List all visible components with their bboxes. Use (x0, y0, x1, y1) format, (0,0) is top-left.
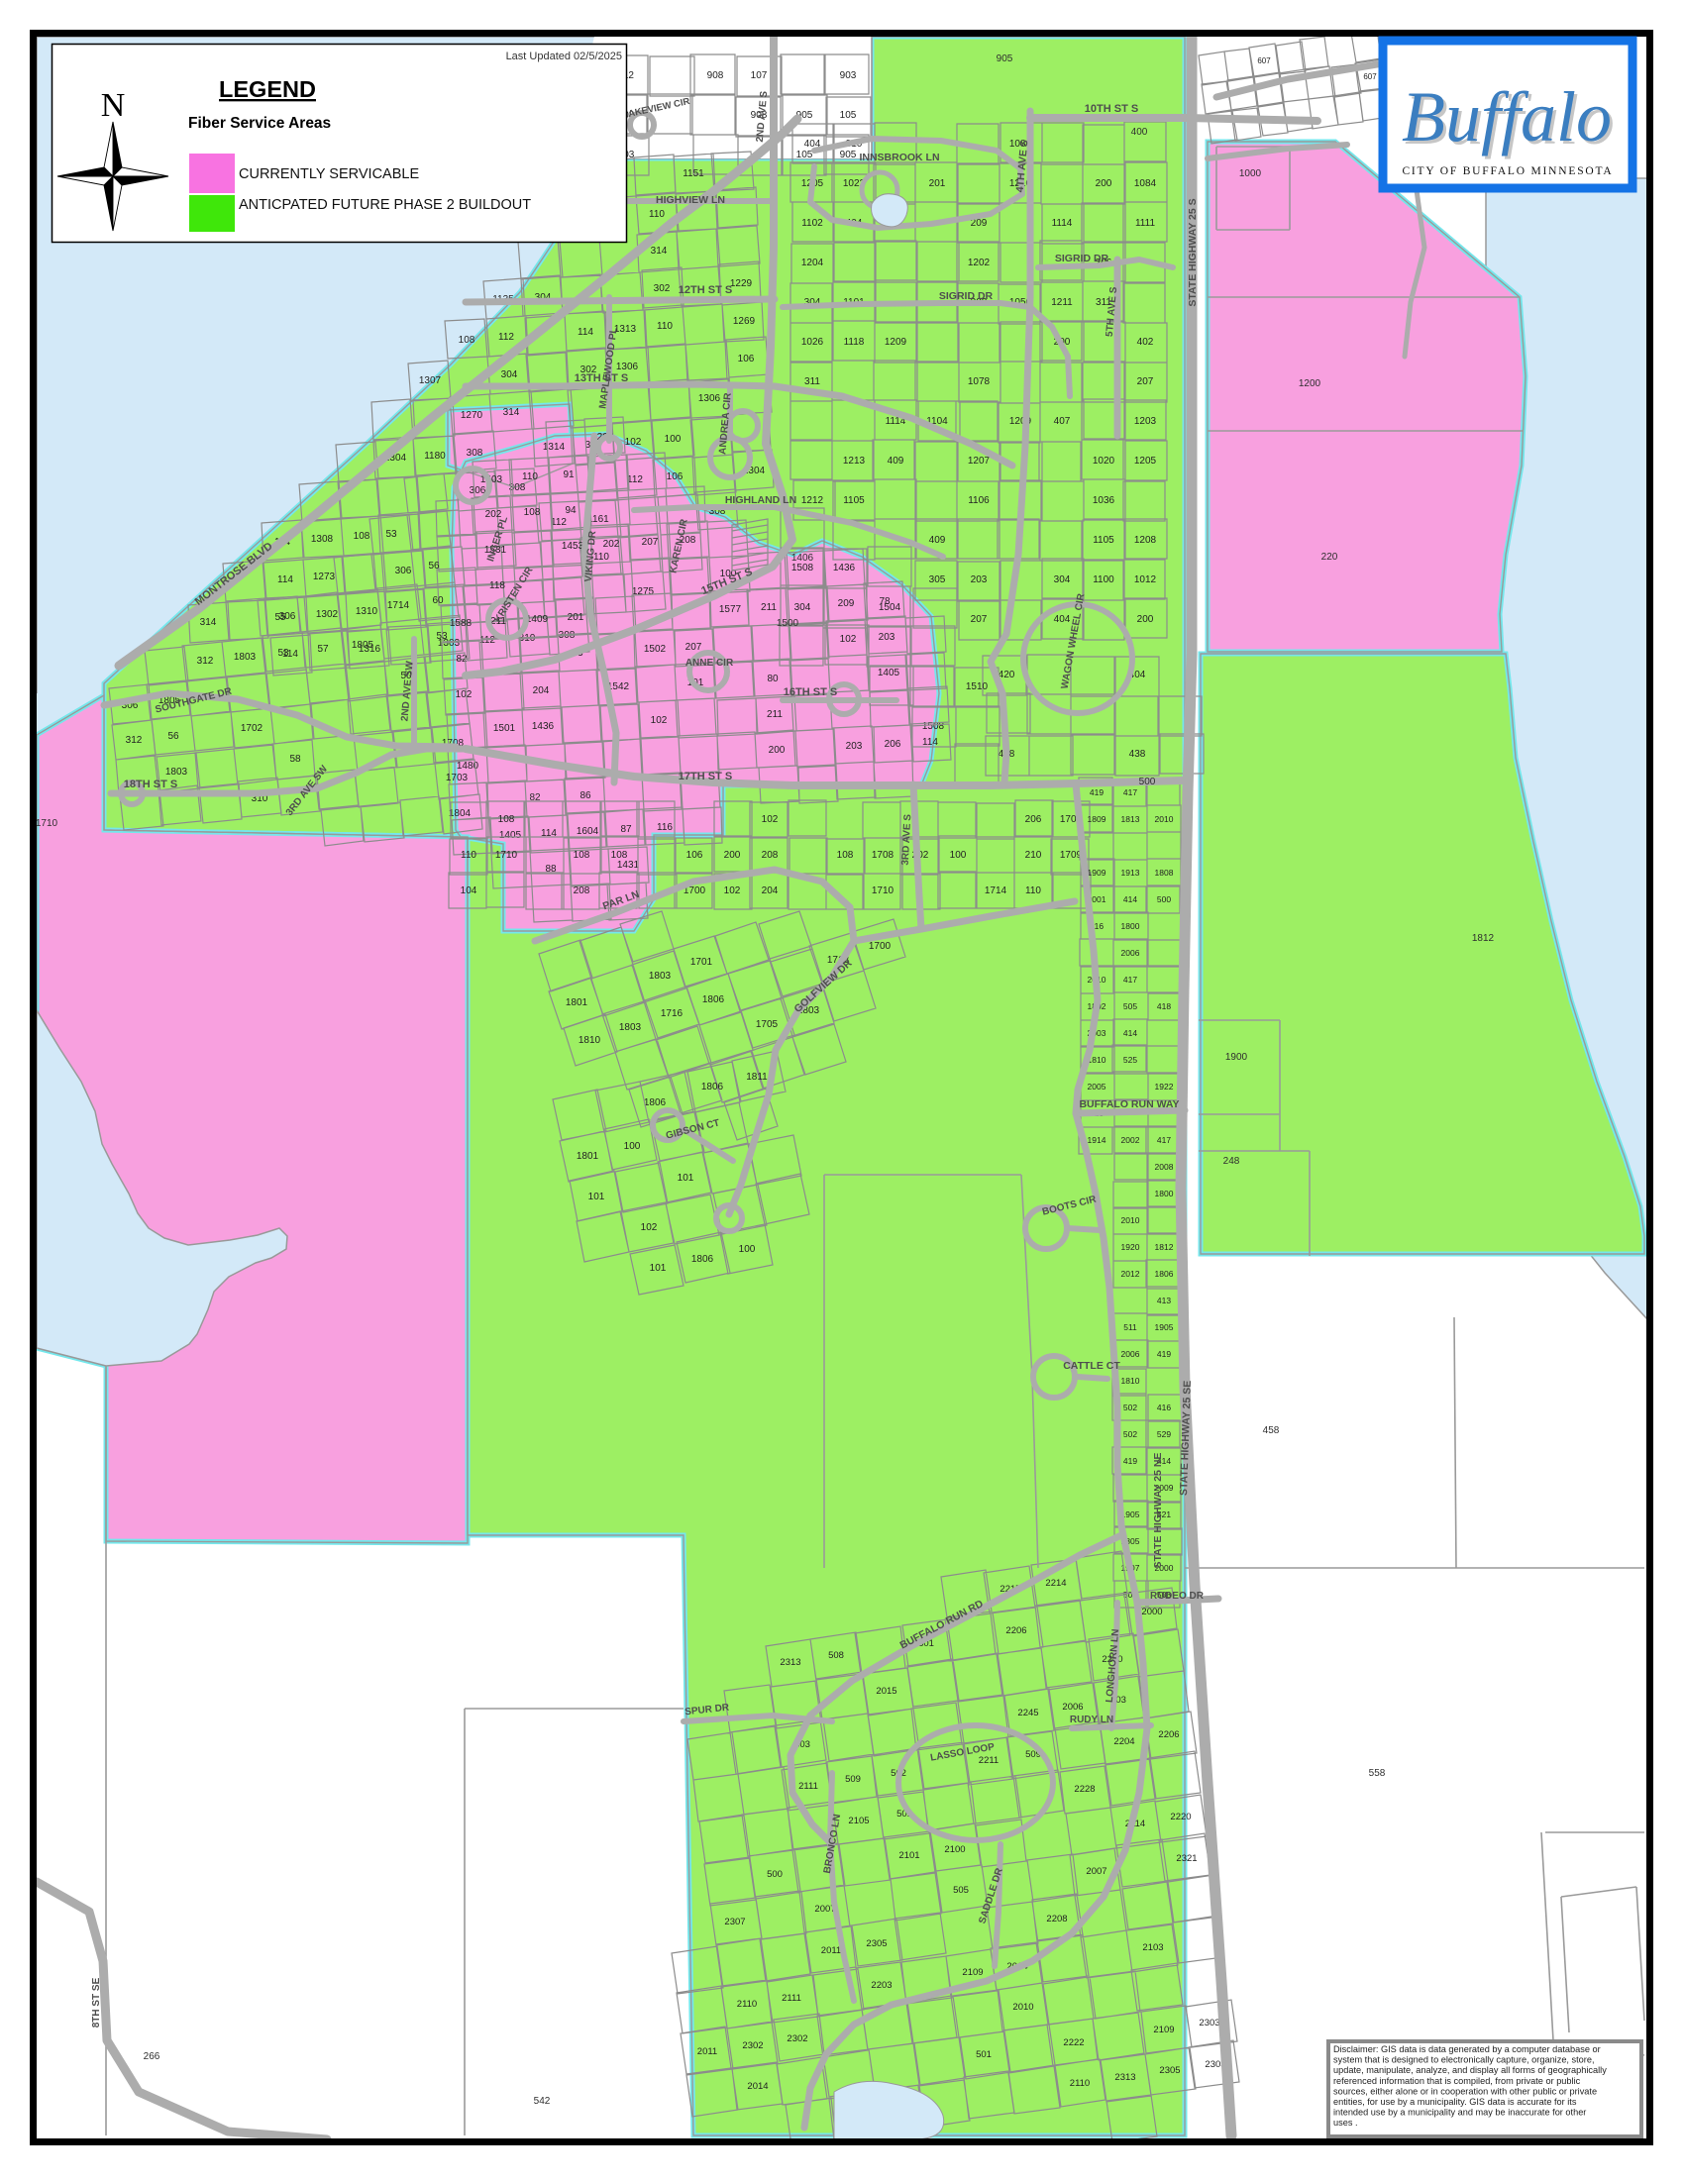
svg-text:2208: 2208 (1046, 1914, 1067, 1924)
svg-text:1106: 1106 (968, 495, 990, 506)
svg-text:2109: 2109 (962, 1967, 983, 1978)
svg-text:1012: 1012 (1134, 574, 1157, 585)
svg-text:416: 416 (1157, 1403, 1171, 1412)
svg-text:1310: 1310 (356, 606, 378, 617)
svg-text:2006: 2006 (1062, 1702, 1083, 1713)
svg-text:1409: 1409 (526, 614, 549, 625)
svg-text:314: 314 (200, 617, 217, 628)
svg-text:2014: 2014 (747, 2081, 768, 2092)
svg-text:1813: 1813 (1121, 814, 1140, 824)
svg-text:112: 112 (551, 517, 567, 528)
svg-text:1806: 1806 (701, 1082, 724, 1092)
svg-text:108: 108 (611, 850, 628, 861)
svg-text:16TH ST S: 16TH ST S (784, 686, 837, 698)
svg-text:409: 409 (929, 535, 946, 546)
svg-text:203: 203 (971, 574, 988, 585)
svg-text:2111: 2111 (782, 1993, 801, 2004)
svg-text:1714: 1714 (387, 600, 410, 611)
svg-text:308: 308 (467, 448, 483, 459)
svg-text:102: 102 (625, 437, 642, 448)
svg-text:118: 118 (489, 580, 505, 591)
svg-text:58: 58 (289, 754, 301, 765)
svg-text:304: 304 (501, 369, 518, 380)
svg-text:201: 201 (568, 612, 584, 623)
svg-text:56: 56 (167, 731, 179, 742)
svg-text:100: 100 (950, 850, 967, 861)
svg-text:2321: 2321 (1176, 1853, 1197, 1864)
svg-text:100: 100 (665, 434, 682, 445)
svg-text:419: 419 (1123, 1456, 1137, 1466)
svg-text:2010: 2010 (1121, 1215, 1140, 1225)
svg-text:509: 509 (845, 1774, 861, 1785)
svg-text:1705: 1705 (756, 1019, 779, 1030)
svg-text:system that is designed to ele: system that is designed to electronicall… (1333, 2055, 1595, 2065)
svg-text:10TH ST S: 10TH ST S (1085, 103, 1138, 115)
svg-text:1808: 1808 (1155, 868, 1174, 878)
svg-text:104: 104 (461, 885, 477, 896)
svg-text:200: 200 (1137, 614, 1154, 625)
svg-text:8TH ST SE: 8TH ST SE (91, 1977, 102, 2028)
svg-text:203: 203 (879, 632, 895, 643)
svg-text:208: 208 (762, 850, 779, 861)
svg-text:1202: 1202 (968, 258, 991, 268)
svg-text:2211: 2211 (979, 1755, 999, 1766)
svg-text:1118: 1118 (844, 337, 865, 348)
svg-text:107: 107 (751, 70, 768, 81)
svg-text:417: 417 (1123, 787, 1137, 797)
svg-text:1716: 1716 (661, 1008, 684, 1019)
svg-text:558: 558 (1369, 1768, 1386, 1779)
svg-text:2110: 2110 (737, 1999, 757, 2010)
svg-text:CURRENTLY SERVICABLE: CURRENTLY SERVICABLE (239, 166, 419, 182)
svg-text:1270: 1270 (461, 410, 483, 421)
svg-text:201: 201 (929, 178, 946, 189)
svg-text:1708: 1708 (872, 850, 895, 861)
svg-text:1710: 1710 (36, 818, 58, 829)
svg-text:2220: 2220 (1170, 1812, 1191, 1822)
svg-text:501: 501 (976, 2049, 992, 2060)
svg-text:203: 203 (846, 741, 863, 752)
svg-text:102: 102 (456, 689, 473, 700)
svg-text:1810: 1810 (579, 1035, 601, 1046)
svg-text:112: 112 (498, 332, 514, 343)
svg-text:1914: 1914 (1088, 1135, 1106, 1145)
svg-text:404: 404 (1054, 614, 1071, 625)
svg-text:2111: 2111 (798, 1781, 818, 1792)
svg-text:314: 314 (651, 246, 668, 257)
svg-text:304: 304 (1054, 574, 1071, 585)
svg-text:Last Updated 02/5/2025: Last Updated 02/5/2025 (506, 51, 622, 62)
svg-text:419: 419 (1090, 787, 1104, 797)
svg-text:1405: 1405 (499, 830, 522, 841)
svg-text:17TH ST S: 17TH ST S (679, 771, 732, 782)
svg-text:57: 57 (317, 644, 329, 655)
svg-text:116: 116 (657, 822, 673, 833)
svg-text:2012: 2012 (1121, 1269, 1140, 1279)
svg-text:1102: 1102 (801, 218, 823, 229)
svg-text:1203: 1203 (1134, 416, 1157, 427)
svg-text:1801: 1801 (577, 1151, 599, 1162)
svg-text:2103: 2103 (1142, 1942, 1163, 1953)
svg-text:CITY OF BUFFALO MINNESOTA: CITY OF BUFFALO MINNESOTA (1402, 165, 1613, 177)
svg-text:Fiber Service Areas: Fiber Service Areas (188, 115, 331, 132)
svg-text:108: 108 (498, 814, 515, 825)
svg-text:SIGRID DR: SIGRID DR (939, 290, 994, 302)
svg-text:1212: 1212 (801, 495, 824, 506)
svg-text:1806: 1806 (644, 1097, 667, 1108)
svg-text:2204: 2204 (1113, 1736, 1134, 1747)
svg-text:2006: 2006 (1121, 1349, 1140, 1359)
svg-text:114: 114 (277, 574, 293, 585)
svg-text:1209: 1209 (885, 337, 907, 348)
svg-text:2206: 2206 (1158, 1729, 1179, 1740)
svg-text:905: 905 (997, 53, 1013, 64)
svg-text:100: 100 (624, 1141, 641, 1152)
svg-text:1811: 1811 (746, 1072, 768, 1083)
svg-text:1500: 1500 (777, 618, 799, 629)
svg-text:2313: 2313 (1114, 2072, 1135, 2083)
svg-text:1502: 1502 (644, 644, 667, 655)
svg-text:266: 266 (144, 2051, 160, 2062)
svg-text:200: 200 (724, 850, 741, 861)
svg-text:91: 91 (563, 469, 575, 480)
svg-text:LEGEND: LEGEND (219, 76, 316, 102)
svg-text:1111: 1111 (1135, 218, 1155, 229)
svg-text:202: 202 (603, 539, 620, 550)
svg-text:409: 409 (888, 456, 904, 467)
svg-text:209: 209 (838, 598, 855, 609)
svg-text:1307: 1307 (419, 375, 442, 386)
svg-text:206: 206 (885, 739, 901, 750)
svg-text:508: 508 (828, 1650, 844, 1661)
svg-text:108: 108 (459, 335, 475, 346)
svg-text:102: 102 (641, 1222, 658, 1233)
svg-text:1211: 1211 (1051, 297, 1073, 308)
svg-text:511: 511 (1123, 1322, 1137, 1332)
svg-text:53: 53 (277, 648, 289, 659)
svg-text:417: 417 (1157, 1135, 1171, 1145)
svg-text:1200: 1200 (1299, 378, 1321, 389)
svg-text:248: 248 (1223, 1156, 1240, 1167)
svg-text:207: 207 (971, 614, 988, 625)
svg-text:1577: 1577 (719, 604, 742, 615)
svg-text:101: 101 (650, 1263, 667, 1274)
svg-text:1405: 1405 (878, 668, 900, 678)
svg-text:418: 418 (1157, 1001, 1171, 1011)
svg-text:sources, either alone or in co: sources, either alone or in cooperation … (1333, 2086, 1597, 2096)
svg-text:1204: 1204 (801, 258, 824, 268)
svg-text:314: 314 (503, 407, 520, 418)
svg-text:entities, for use by a municip: entities, for use by a municipality. GIS… (1333, 2097, 1577, 2107)
svg-text:1213: 1213 (843, 456, 866, 467)
svg-text:intended use by a municipality: intended use by a municipality and may b… (1333, 2108, 1586, 2118)
svg-text:1920: 1920 (1121, 1242, 1140, 1252)
svg-text:1803: 1803 (619, 1022, 642, 1033)
svg-text:1508: 1508 (791, 563, 814, 573)
svg-text:1180: 1180 (424, 451, 446, 462)
svg-text:302: 302 (654, 283, 671, 294)
svg-text:1436: 1436 (833, 563, 856, 573)
svg-text:110: 110 (649, 209, 665, 220)
svg-text:607: 607 (1363, 72, 1377, 81)
svg-text:419: 419 (1157, 1349, 1171, 1359)
svg-text:55: 55 (274, 612, 286, 623)
svg-text:908: 908 (707, 70, 724, 81)
svg-text:2007: 2007 (1086, 1866, 1106, 1877)
svg-text:1710: 1710 (495, 850, 518, 861)
svg-text:1801: 1801 (566, 997, 588, 1008)
svg-text:407: 407 (1054, 416, 1071, 427)
svg-text:108: 108 (837, 850, 854, 861)
svg-text:2110: 2110 (1070, 2078, 1090, 2089)
svg-text:N: N (101, 87, 126, 124)
svg-text:1105: 1105 (1093, 535, 1114, 546)
svg-text:1302: 1302 (316, 609, 339, 620)
svg-text:2303: 2303 (1199, 2018, 1219, 2028)
svg-text:542: 542 (534, 2096, 551, 2107)
svg-text:1806: 1806 (691, 1254, 714, 1265)
svg-text:1805: 1805 (352, 640, 374, 651)
svg-text:1207: 1207 (968, 456, 991, 467)
svg-text:1803: 1803 (649, 971, 672, 982)
svg-text:update, manipulate, analyze, a: update, manipulate, analyze, and display… (1333, 2065, 1607, 2075)
svg-text:1036: 1036 (1093, 495, 1115, 506)
svg-text:101: 101 (678, 1173, 694, 1184)
svg-text:INNSBROOK LN: INNSBROOK LN (859, 152, 939, 163)
svg-text:1078: 1078 (968, 376, 991, 387)
svg-text:525: 525 (1123, 1055, 1137, 1065)
svg-text:12TH ST S: 12TH ST S (679, 284, 732, 296)
svg-text:STATE HIGHWAY 25 NE: STATE HIGHWAY 25 NE (1152, 1453, 1164, 1569)
svg-text:ANNE CIR: ANNE CIR (685, 658, 734, 669)
svg-text:106: 106 (686, 850, 703, 861)
svg-text:2307: 2307 (724, 1917, 745, 1927)
svg-text:1406: 1406 (791, 553, 814, 564)
svg-text:1703: 1703 (446, 773, 469, 783)
svg-text:2010: 2010 (1012, 2002, 1033, 2013)
svg-text:1702: 1702 (241, 723, 263, 734)
svg-text:1810: 1810 (1121, 1376, 1140, 1386)
svg-text:312: 312 (126, 735, 143, 746)
svg-text:312: 312 (197, 656, 214, 667)
svg-text:413: 413 (1157, 1296, 1171, 1305)
svg-text:2006: 2006 (1121, 948, 1140, 958)
svg-text:500: 500 (1139, 777, 1156, 787)
svg-text:2011: 2011 (821, 1945, 841, 1956)
svg-text:505: 505 (953, 1885, 969, 1896)
svg-text:1453: 1453 (562, 541, 584, 552)
svg-text:110: 110 (461, 850, 476, 861)
svg-text:200: 200 (769, 745, 786, 756)
svg-text:1604: 1604 (577, 826, 599, 837)
svg-text:1306: 1306 (698, 393, 721, 404)
svg-text:905: 905 (840, 150, 857, 160)
svg-text:207: 207 (642, 537, 659, 548)
svg-text:458: 458 (1263, 1425, 1280, 1436)
svg-text:2305: 2305 (1159, 2065, 1180, 2076)
svg-text:2100: 2100 (944, 1844, 965, 1855)
svg-text:106: 106 (667, 471, 684, 482)
svg-text:2203: 2203 (871, 1980, 892, 1991)
svg-text:211: 211 (761, 602, 777, 613)
svg-text:CATTLE CT: CATTLE CT (1063, 1360, 1120, 1372)
svg-text:105: 105 (840, 110, 857, 121)
svg-text:Buffalo: Buffalo (1402, 77, 1612, 156)
svg-text:2000: 2000 (1141, 1607, 1162, 1617)
svg-text:108: 108 (354, 531, 370, 542)
svg-text:417: 417 (1123, 975, 1137, 985)
svg-text:1100: 1100 (1093, 574, 1114, 585)
svg-text:1804: 1804 (449, 808, 472, 819)
svg-text:1806: 1806 (702, 994, 725, 1005)
svg-text:HIGHLAND LN: HIGHLAND LN (725, 494, 796, 506)
svg-text:1114: 1114 (1052, 218, 1073, 229)
svg-text:207: 207 (1137, 376, 1154, 387)
svg-text:1709: 1709 (1060, 850, 1083, 861)
svg-text:108: 108 (574, 850, 590, 861)
svg-text:uses .: uses . (1333, 2118, 1358, 2128)
svg-text:53: 53 (385, 529, 397, 540)
svg-text:1714: 1714 (985, 885, 1007, 896)
svg-text:204: 204 (533, 685, 550, 696)
svg-text:2008: 2008 (1155, 1162, 1174, 1172)
svg-text:1905: 1905 (1155, 1322, 1174, 1332)
svg-text:2105: 2105 (848, 1816, 869, 1826)
svg-text:208: 208 (574, 885, 590, 896)
svg-text:400: 400 (1131, 127, 1148, 138)
svg-text:60: 60 (432, 595, 444, 606)
svg-text:RODEO DR: RODEO DR (1150, 1591, 1205, 1602)
svg-text:106: 106 (738, 354, 755, 364)
svg-text:STATE HIGHWAY 25 S: STATE HIGHWAY 25 S (1187, 198, 1199, 306)
svg-text:414: 414 (1123, 1028, 1137, 1038)
svg-text:1803: 1803 (165, 767, 188, 778)
svg-text:HIGHVIEW LN: HIGHVIEW LN (656, 194, 725, 206)
svg-text:1308: 1308 (311, 534, 334, 545)
svg-text:207: 207 (685, 642, 702, 653)
svg-text:114: 114 (922, 737, 938, 748)
svg-text:529: 529 (1157, 1429, 1171, 1439)
svg-text:112: 112 (627, 474, 643, 485)
svg-text:BUFFALO RUN WAY: BUFFALO RUN WAY (1079, 1098, 1179, 1110)
svg-text:2206: 2206 (1005, 1625, 1026, 1636)
svg-text:1922: 1922 (1155, 1082, 1174, 1092)
svg-text:102: 102 (724, 885, 741, 896)
svg-text:206: 206 (1025, 814, 1042, 825)
svg-text:2015: 2015 (876, 1686, 896, 1697)
svg-text:1700: 1700 (869, 941, 892, 952)
svg-text:311: 311 (804, 376, 820, 387)
svg-text:RUDY LN: RUDY LN (1070, 1715, 1113, 1725)
svg-text:1084: 1084 (1134, 178, 1157, 189)
svg-text:94: 94 (565, 505, 577, 516)
svg-text:18TH ST S: 18TH ST S (124, 779, 177, 790)
svg-text:1020: 1020 (1093, 456, 1115, 467)
svg-text:2228: 2228 (1074, 1784, 1095, 1795)
svg-text:305: 305 (929, 574, 946, 585)
svg-text:2302: 2302 (787, 2033, 807, 2044)
svg-text:211: 211 (767, 709, 783, 720)
svg-text:500: 500 (767, 1869, 783, 1880)
svg-text:220: 220 (1321, 552, 1338, 563)
svg-text:82: 82 (529, 792, 541, 803)
svg-text:502: 502 (1123, 1429, 1137, 1439)
svg-text:505: 505 (1123, 1001, 1137, 1011)
svg-text:1208: 1208 (1134, 535, 1157, 546)
svg-text:102: 102 (762, 814, 779, 825)
svg-text:110: 110 (1025, 885, 1041, 896)
svg-text:2214: 2214 (1045, 1578, 1066, 1589)
svg-text:1809: 1809 (1088, 814, 1106, 824)
svg-text:500: 500 (1157, 894, 1171, 904)
svg-text:1812: 1812 (1155, 1242, 1174, 1252)
svg-text:86: 86 (579, 790, 591, 801)
svg-text:110: 110 (522, 471, 538, 482)
svg-text:1710: 1710 (872, 885, 895, 896)
svg-text:1151: 1151 (683, 168, 704, 179)
svg-text:1205: 1205 (1134, 456, 1157, 467)
svg-text:2101: 2101 (898, 1850, 919, 1861)
svg-text:1000: 1000 (1239, 168, 1262, 179)
svg-text:80: 80 (767, 674, 779, 684)
svg-text:2302: 2302 (742, 2040, 763, 2051)
svg-text:1105: 1105 (843, 495, 865, 506)
svg-text:1273: 1273 (313, 572, 336, 582)
svg-text:1812: 1812 (1472, 933, 1495, 944)
svg-text:100: 100 (739, 1244, 756, 1255)
svg-text:502: 502 (1123, 1403, 1137, 1412)
svg-text:1229: 1229 (730, 278, 753, 289)
svg-text:56: 56 (428, 561, 440, 572)
svg-text:Disclaimer: GIS data is data g: Disclaimer: GIS data is data generated b… (1333, 2044, 1601, 2054)
svg-text:110: 110 (657, 321, 673, 332)
svg-text:102: 102 (840, 634, 857, 645)
svg-text:105: 105 (796, 150, 813, 160)
svg-text:2010: 2010 (1155, 814, 1174, 824)
svg-text:402: 402 (1137, 337, 1154, 348)
svg-text:200: 200 (1096, 178, 1112, 189)
svg-text:1026: 1026 (801, 337, 824, 348)
svg-text:referenced information that is: referenced information that is compiled,… (1333, 2076, 1581, 2086)
svg-text:1701: 1701 (690, 957, 713, 968)
svg-text:1909: 1909 (1088, 868, 1106, 878)
svg-text:53: 53 (436, 631, 448, 642)
svg-text:2222: 2222 (1063, 2037, 1084, 2048)
svg-text:2002: 2002 (1121, 1135, 1140, 1145)
svg-text:1900: 1900 (1225, 1052, 1248, 1063)
svg-text:1800: 1800 (1121, 921, 1140, 931)
svg-text:ANTICPATED FUTURE PHASE 2 BUIL: ANTICPATED FUTURE PHASE 2 BUILDOUT (239, 197, 531, 213)
svg-text:1800: 1800 (1155, 1189, 1174, 1198)
svg-text:108: 108 (524, 507, 541, 518)
svg-text:306: 306 (395, 566, 412, 576)
svg-text:1314: 1314 (543, 442, 566, 453)
svg-text:102: 102 (651, 715, 668, 726)
svg-text:2109: 2109 (1153, 2025, 1174, 2035)
svg-text:1431: 1431 (617, 860, 640, 871)
svg-text:1806: 1806 (1155, 1269, 1174, 1279)
svg-text:438: 438 (1129, 749, 1146, 760)
svg-text:2245: 2245 (1017, 1708, 1038, 1718)
svg-text:1306: 1306 (616, 362, 639, 372)
svg-text:87: 87 (620, 824, 632, 835)
svg-text:414: 414 (1123, 894, 1137, 904)
svg-text:210: 210 (1025, 850, 1042, 861)
svg-text:78: 78 (879, 596, 891, 607)
svg-text:1436: 1436 (532, 721, 555, 732)
svg-text:114: 114 (578, 327, 593, 338)
svg-text:13TH ST S: 13TH ST S (575, 372, 628, 384)
